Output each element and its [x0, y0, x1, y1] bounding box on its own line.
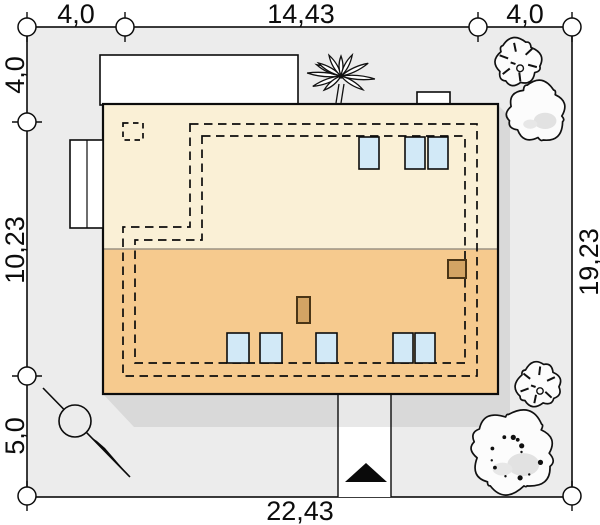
- dim-top-left: 4,0: [57, 0, 95, 29]
- site-plan: 4,0 14,43 4,0 4,0 10,23 5,0 19,23 22,43: [0, 0, 600, 525]
- dim-left-top: 4,0: [0, 56, 30, 94]
- chimney: [448, 260, 466, 278]
- survey-marker: [469, 18, 487, 36]
- dim-top-right: 4,0: [506, 0, 544, 29]
- site-plan-drawing: 4,0 14,43 4,0 4,0 10,23 5,0 19,23 22,43: [0, 0, 600, 525]
- roof-window: [260, 333, 282, 363]
- chimney: [297, 297, 310, 323]
- survey-marker: [18, 487, 36, 505]
- roof-window: [359, 137, 379, 169]
- roof-window: [227, 333, 249, 363]
- survey-marker: [116, 18, 134, 36]
- dim-left-bottom: 5,0: [0, 417, 30, 455]
- roof-window: [428, 137, 448, 169]
- dim-bottom-center: 22,43: [266, 496, 334, 525]
- survey-marker: [563, 18, 581, 36]
- side-bay: [70, 140, 103, 228]
- dim-right-center: 19,23: [574, 228, 600, 296]
- roof-window: [316, 333, 337, 363]
- roof-window: [415, 333, 435, 363]
- terrace: [100, 55, 298, 105]
- survey-marker: [563, 487, 581, 505]
- dim-left-center: 10,23: [0, 216, 30, 284]
- roof-window: [405, 137, 425, 169]
- roof-window: [393, 333, 413, 363]
- driveway: [338, 394, 391, 497]
- dim-top-center: 14,43: [267, 0, 335, 29]
- survey-marker: [18, 113, 36, 131]
- driveway-shaded-part: [338, 394, 391, 427]
- survey-marker: [18, 367, 36, 385]
- survey-marker: [18, 18, 36, 36]
